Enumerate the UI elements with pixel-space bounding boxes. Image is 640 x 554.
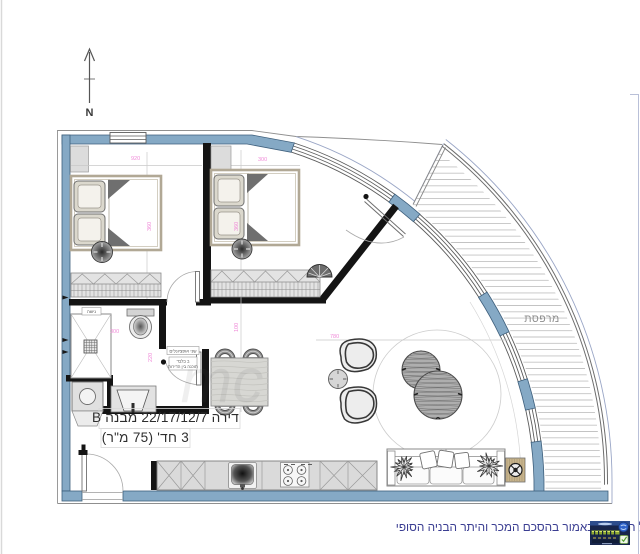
svg-text:920: 920 xyxy=(131,156,140,162)
svg-text:360: 360 xyxy=(234,222,240,231)
svg-text:N: N xyxy=(86,107,94,119)
svg-text:300: 300 xyxy=(110,329,119,335)
svg-text:300: 300 xyxy=(258,157,267,163)
svg-text:100: 100 xyxy=(234,323,240,332)
svg-text:220: 220 xyxy=(148,353,154,362)
svg-text:מרפסת: מרפסת xyxy=(524,313,559,325)
svg-text:נישה: נישה xyxy=(87,309,96,314)
svg-text:780: 780 xyxy=(330,334,339,340)
svg-text:mc: mc xyxy=(181,347,264,416)
svg-text:360: 360 xyxy=(147,222,153,231)
